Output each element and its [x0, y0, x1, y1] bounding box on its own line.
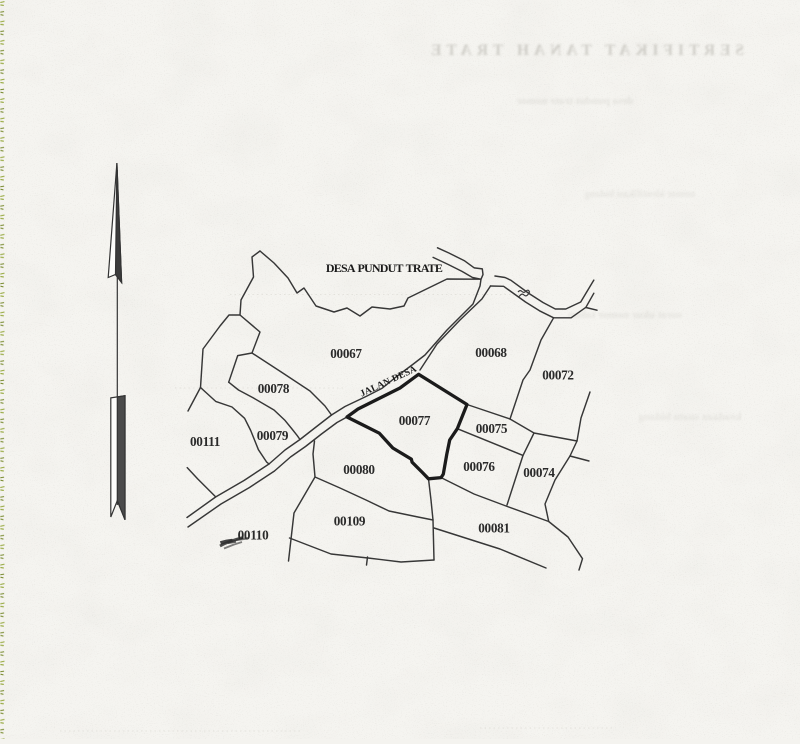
svg-text:00067: 00067 [330, 346, 362, 361]
svg-text:keadaan suatu bidang: keadaan suatu bidang [638, 411, 742, 423]
svg-text:SERTIFIKAT TANAH TRATE: SERTIFIKAT TANAH TRATE [426, 42, 744, 59]
svg-text:00110: 00110 [238, 528, 269, 543]
svg-text:00081: 00081 [478, 521, 509, 536]
svg-text:desa pundut trate nomor: desa pundut trate nomor [516, 95, 633, 107]
svg-text:DESA PUNDUT TRATE: DESA PUNDUT TRATE [326, 261, 443, 275]
svg-text:00109: 00109 [334, 514, 366, 529]
svg-text:00111: 00111 [190, 434, 220, 449]
svg-text:00077: 00077 [399, 413, 431, 428]
svg-text:00078: 00078 [258, 381, 290, 396]
svg-text:00074: 00074 [523, 465, 555, 480]
svg-text:00079: 00079 [257, 428, 289, 443]
svg-text:00068: 00068 [475, 345, 507, 360]
svg-text:00075: 00075 [476, 421, 508, 436]
svg-text:00072: 00072 [542, 368, 574, 383]
svg-text:surat ukur nomor tahun: surat ukur nomor tahun [568, 309, 682, 321]
svg-text:00076: 00076 [463, 459, 495, 474]
svg-text:00080: 00080 [343, 462, 375, 477]
svg-text:nomor identifikasi bidang: nomor identifikasi bidang [585, 189, 695, 200]
